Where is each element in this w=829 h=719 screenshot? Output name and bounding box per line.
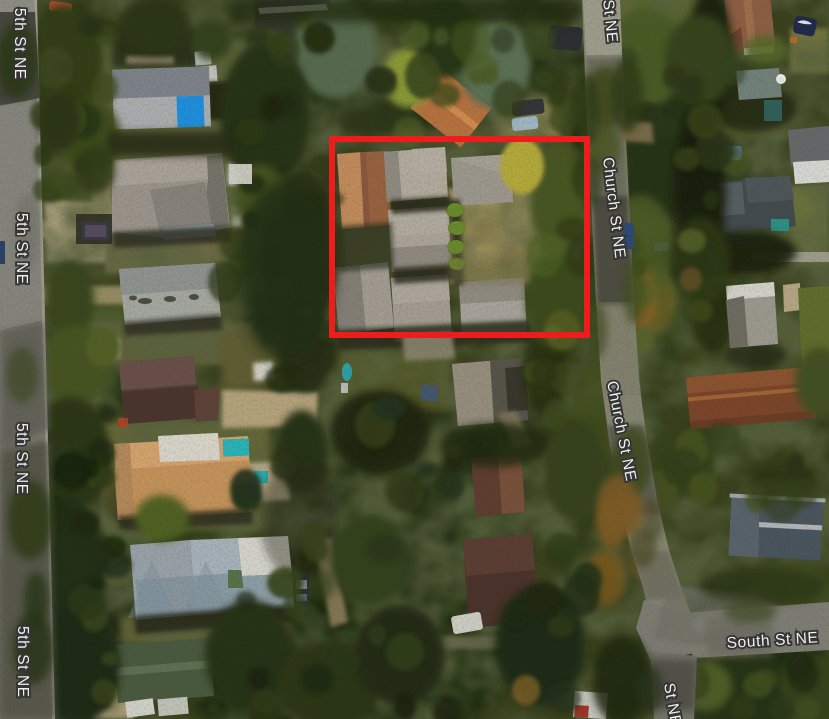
svg-text:5th St NE: 5th St NE (13, 423, 30, 495)
svg-text:5th St NE: 5th St NE (14, 626, 31, 698)
svg-text:5th St NE: 5th St NE (13, 213, 30, 285)
svg-text:5th St NE: 5th St NE (11, 8, 28, 80)
